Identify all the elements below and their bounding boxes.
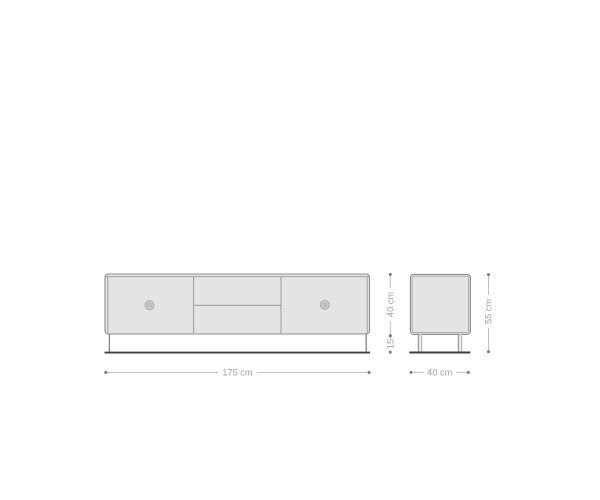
- svg-text:175 cm: 175 cm: [222, 367, 252, 377]
- svg-text:40 cm: 40 cm: [427, 368, 452, 378]
- svg-text:15: 15: [386, 339, 396, 349]
- svg-text:55 cm: 55 cm: [484, 299, 494, 324]
- svg-text:40 cm: 40 cm: [386, 292, 396, 317]
